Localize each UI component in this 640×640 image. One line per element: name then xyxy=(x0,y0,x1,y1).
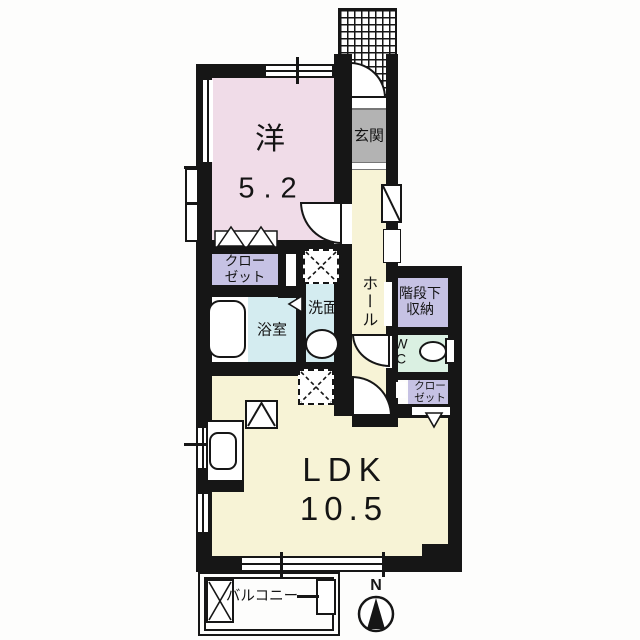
closet-door-marks xyxy=(214,224,278,248)
kitchen-unit-mark xyxy=(247,402,276,427)
closet-lower-door-mark xyxy=(424,412,444,429)
balcony-box xyxy=(316,579,336,615)
label-ldk-size: 10.5 xyxy=(300,490,388,528)
floor-plan: N 洋 5.2 玄関 ホール クロー ゼット 浴室 洗面 階段下 収納 W C … xyxy=(0,0,640,640)
compass-icon: N xyxy=(352,572,400,638)
window xyxy=(185,168,199,242)
label-western-room-size: 5.2 xyxy=(238,172,305,205)
washbasin-icon xyxy=(305,329,339,359)
window-line xyxy=(266,70,332,72)
label-hall: ホール xyxy=(358,275,376,329)
label-stair-storage-line1: 階段下 xyxy=(399,285,441,301)
label-stair-storage: 階段下 収納 xyxy=(399,285,441,317)
counter-box xyxy=(383,229,401,263)
bathtub-icon xyxy=(208,300,246,358)
kitchen-unit-icon xyxy=(245,400,278,429)
toilet-bowl-icon xyxy=(419,341,447,362)
label-closet-upper-line1: クロー xyxy=(225,253,266,269)
label-balcony: バルコニー xyxy=(226,589,298,606)
label-wc: W C xyxy=(394,337,407,368)
shoe-cabinet-icon xyxy=(381,184,402,223)
label-closet-lower: クロー ゼット xyxy=(414,380,446,404)
label-closet-upper: クロー ゼット xyxy=(225,253,266,284)
label-stair-storage-line2: 収納 xyxy=(399,301,441,317)
label-wc-line2: C xyxy=(394,352,407,367)
kitchen-sink-icon xyxy=(209,432,237,470)
window-tick xyxy=(184,166,198,169)
entrance-threshold xyxy=(352,96,386,110)
window-line xyxy=(202,494,204,532)
window-line xyxy=(207,80,209,162)
label-closet-lower-line2: ゼット xyxy=(414,392,446,404)
label-ldk: LDK xyxy=(302,451,387,489)
window-line xyxy=(202,428,204,468)
window-line xyxy=(185,202,199,205)
window-tick xyxy=(184,443,206,446)
wall xyxy=(448,266,462,556)
balcony-leader-line xyxy=(297,595,319,598)
refrigerator-area-icon xyxy=(298,369,334,405)
compass-north-label: N xyxy=(370,577,382,594)
label-closet-lower-line1: クロー xyxy=(414,380,446,392)
window-tick xyxy=(296,57,299,84)
x-mark xyxy=(300,371,332,403)
label-western-room: 洋 xyxy=(255,123,285,158)
bath-door-mark xyxy=(287,294,304,314)
door-opening xyxy=(384,282,392,326)
x-mark xyxy=(305,251,337,282)
entrance-step xyxy=(352,162,386,170)
label-closet-upper-line2: ゼット xyxy=(225,269,266,285)
wall xyxy=(422,544,462,558)
label-wc-line1: W xyxy=(394,337,407,352)
window-line xyxy=(242,563,384,565)
label-washroom: 洗面 xyxy=(308,299,338,316)
label-entrance: 玄関 xyxy=(354,127,384,144)
door-opening xyxy=(286,254,296,286)
door-opening xyxy=(396,382,406,398)
shoe-cabinet-diagonal xyxy=(383,186,400,221)
washing-machine-area-icon xyxy=(303,249,339,284)
label-bath: 浴室 xyxy=(257,321,287,338)
